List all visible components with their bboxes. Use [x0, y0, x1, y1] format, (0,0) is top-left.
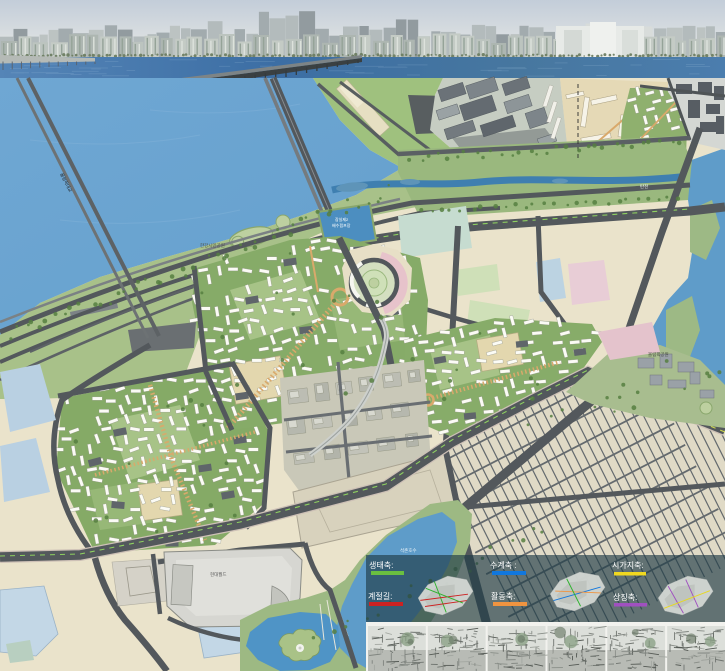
- svg-text:잠실제2: 잠실제2: [335, 216, 349, 222]
- svg-text:시가지축:: 시가지축:: [612, 561, 644, 570]
- svg-text:계절길:: 계절길:: [368, 591, 392, 601]
- svg-text:올림픽공원: 올림픽공원: [648, 351, 669, 358]
- svg-text:상징축:: 상징축:: [613, 592, 637, 602]
- svg-text:현대월드: 현대월드: [210, 571, 227, 578]
- svg-text:수계축 :: 수계축 :: [490, 560, 517, 570]
- svg-text:한강시민공원: 한강시민공원: [200, 242, 225, 248]
- svg-text:활동축:: 활동축:: [491, 591, 515, 601]
- svg-text:탄천: 탄천: [640, 183, 648, 189]
- svg-text:생태축:: 생태축:: [369, 560, 393, 570]
- svg-text:배수펌프장: 배수펌프장: [332, 222, 351, 228]
- svg-text:석촌호수: 석촌호수: [400, 547, 417, 554]
